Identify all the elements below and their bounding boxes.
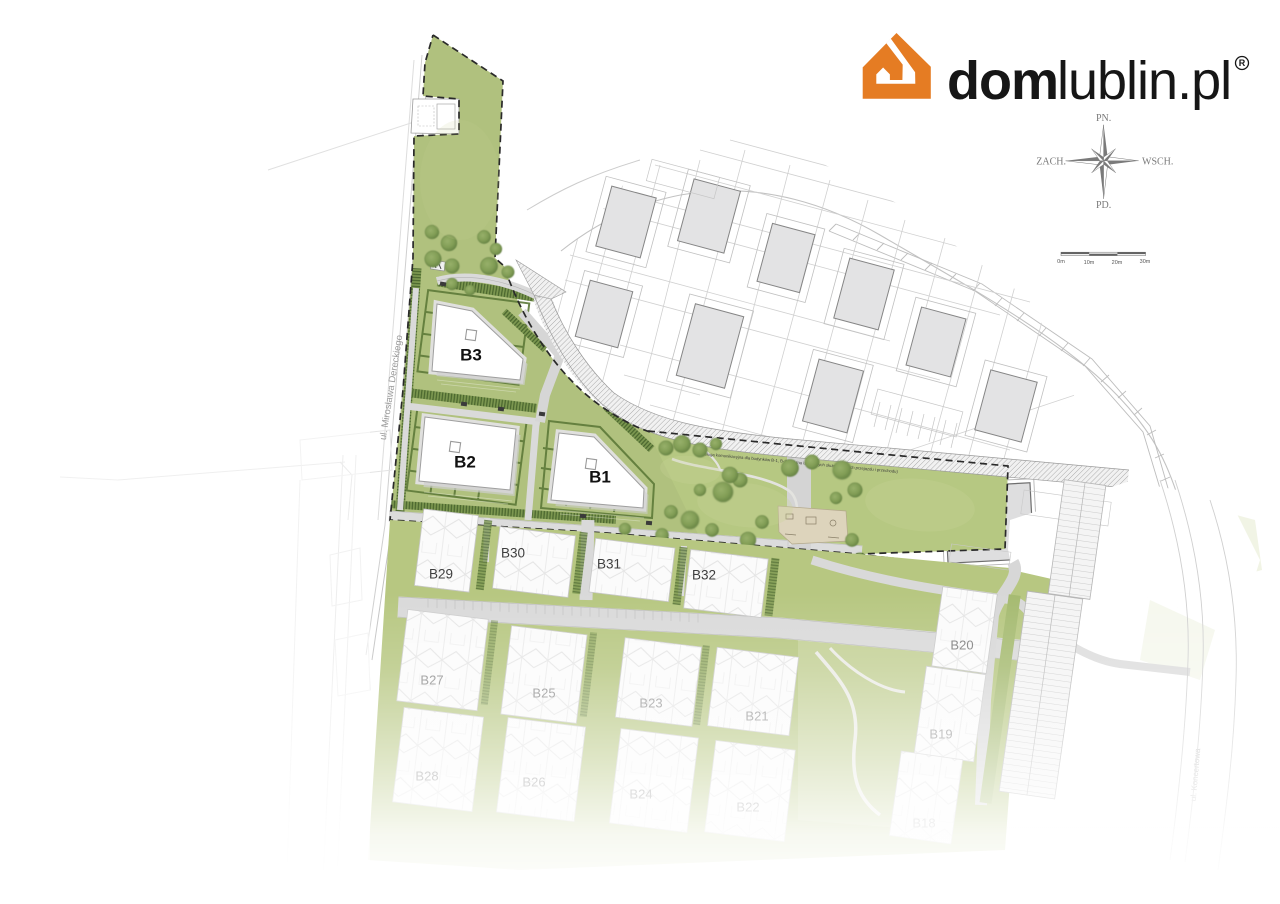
svg-text:30m: 30m — [1140, 259, 1151, 265]
svg-text:R: R — [1239, 58, 1246, 68]
svg-text:PD.: PD. — [1096, 200, 1111, 211]
svg-text:WSCH.: WSCH. — [1142, 157, 1173, 168]
svg-text:lublin.pl: lublin.pl — [1057, 51, 1231, 111]
svg-text:0m: 0m — [1057, 259, 1065, 265]
svg-text:B30: B30 — [501, 546, 525, 561]
svg-text:dom: dom — [947, 51, 1058, 111]
svg-text:20m: 20m — [1112, 260, 1123, 266]
svg-text:10m: 10m — [1084, 260, 1095, 266]
svg-text:ZACH.: ZACH. — [1036, 157, 1066, 168]
svg-text:PN.: PN. — [1096, 113, 1111, 124]
svg-text:B2: B2 — [454, 452, 476, 471]
svg-text:B1: B1 — [589, 467, 611, 486]
svg-text:B3: B3 — [460, 345, 482, 364]
